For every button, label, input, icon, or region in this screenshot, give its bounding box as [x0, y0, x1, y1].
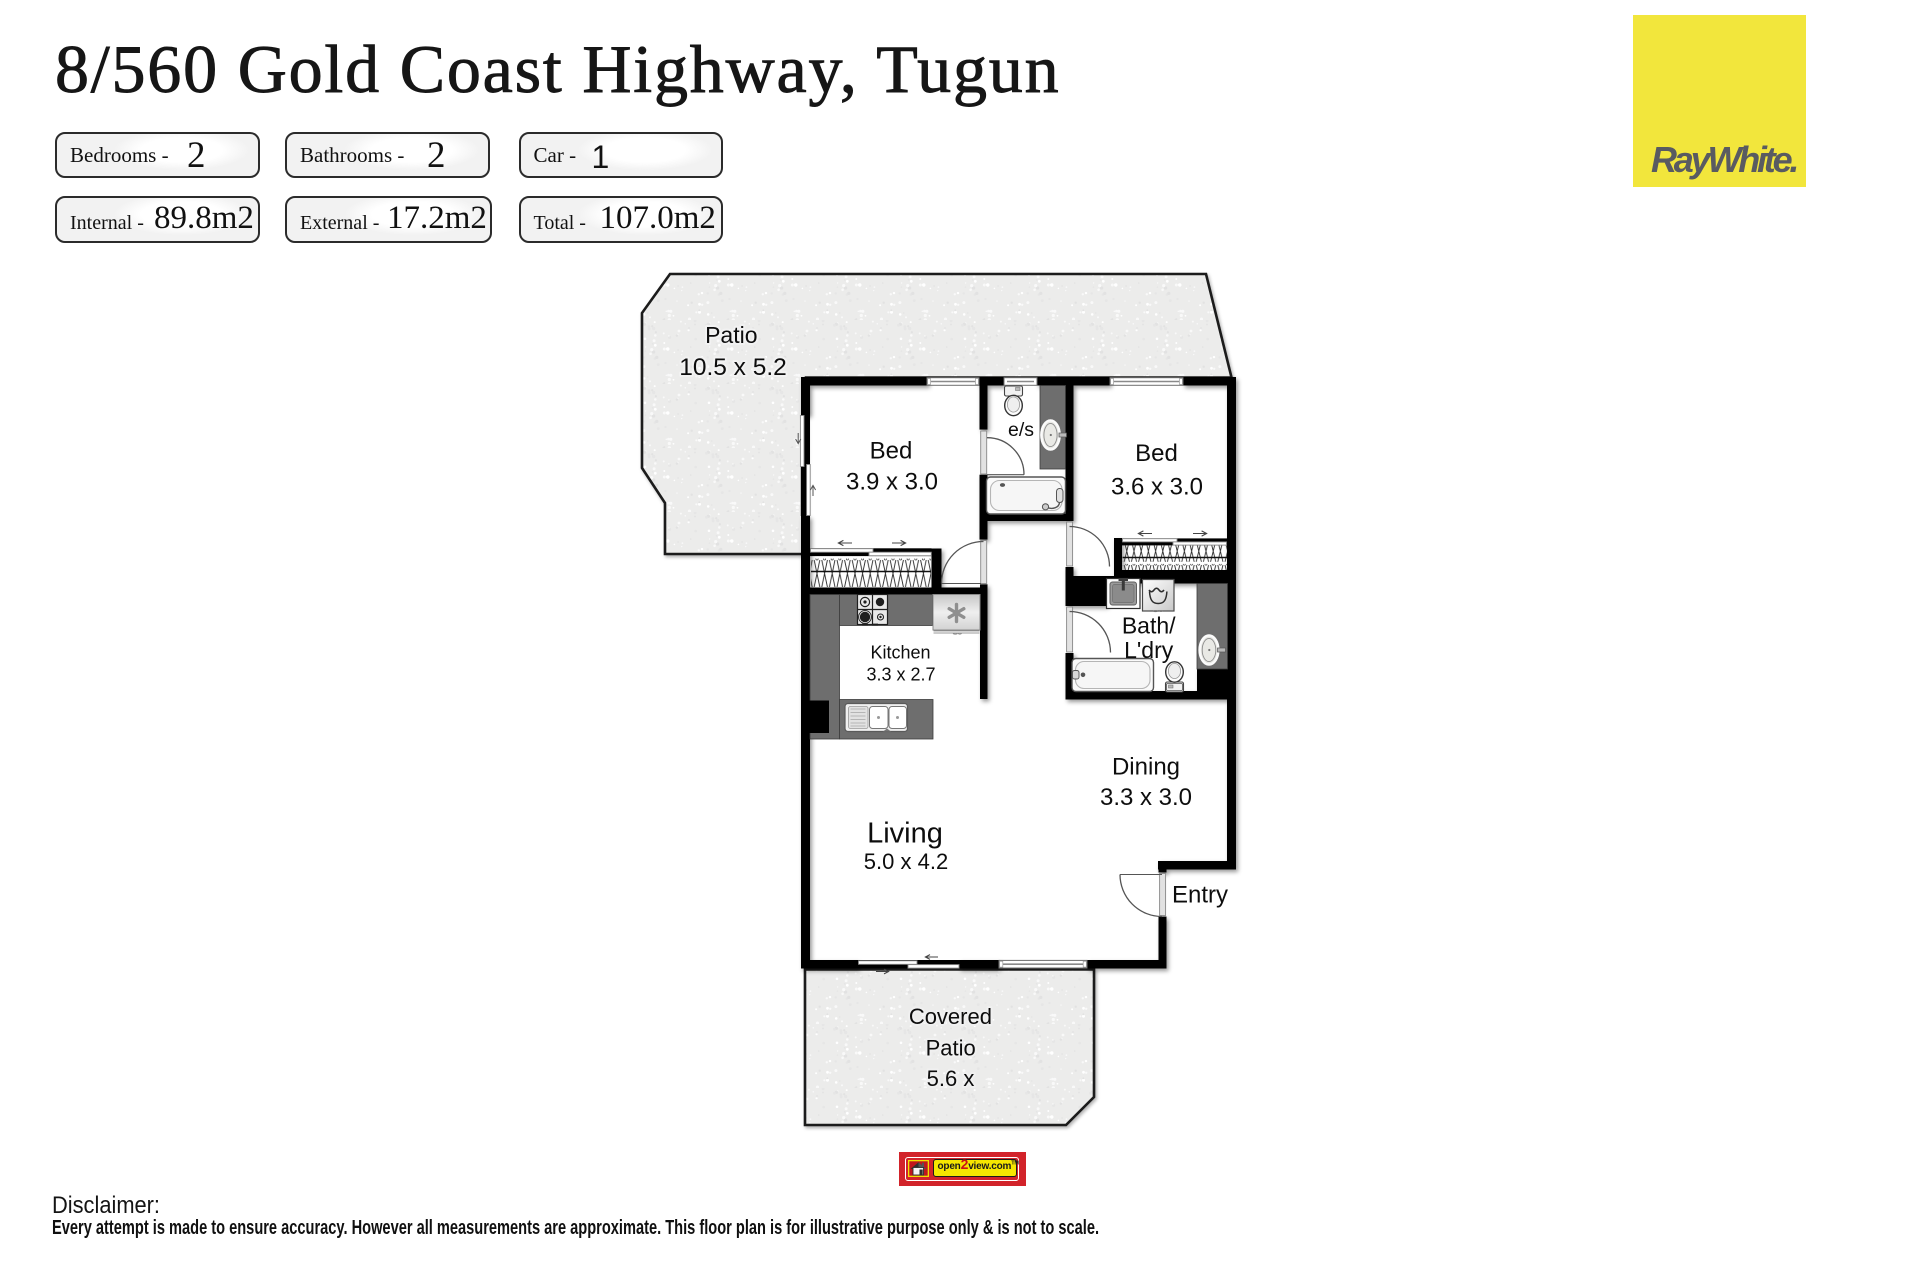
- svg-text:3.3 x 2.7: 3.3 x 2.7: [866, 665, 935, 685]
- svg-text:Patio: Patio: [705, 322, 757, 348]
- svg-text:5.0 x 4.2: 5.0 x 4.2: [864, 849, 948, 874]
- svg-text:10.5 x 5.2: 10.5 x 5.2: [679, 354, 787, 381]
- svg-text:Dining: Dining: [1112, 754, 1180, 781]
- svg-text:Kitchen: Kitchen: [870, 643, 930, 663]
- svg-text:Bed: Bed: [870, 438, 913, 465]
- svg-text:Bath/: Bath/: [1122, 613, 1176, 639]
- svg-text:Living: Living: [867, 818, 943, 850]
- svg-text:Bed: Bed: [1135, 440, 1178, 467]
- svg-text:3.6 x 3.0: 3.6 x 3.0: [1111, 474, 1203, 501]
- svg-text:Covered: Covered: [909, 1004, 992, 1029]
- svg-text:L'dry: L'dry: [1124, 637, 1174, 663]
- svg-text:Patio: Patio: [926, 1036, 976, 1061]
- svg-text:3.3 x 3.0: 3.3 x 3.0: [1100, 784, 1192, 811]
- svg-text:5.6 x: 5.6 x: [927, 1066, 975, 1091]
- svg-text:e/s: e/s: [1008, 419, 1034, 441]
- svg-text:Entry: Entry: [1172, 882, 1228, 909]
- svg-text:3.9 x 3.0: 3.9 x 3.0: [846, 469, 938, 496]
